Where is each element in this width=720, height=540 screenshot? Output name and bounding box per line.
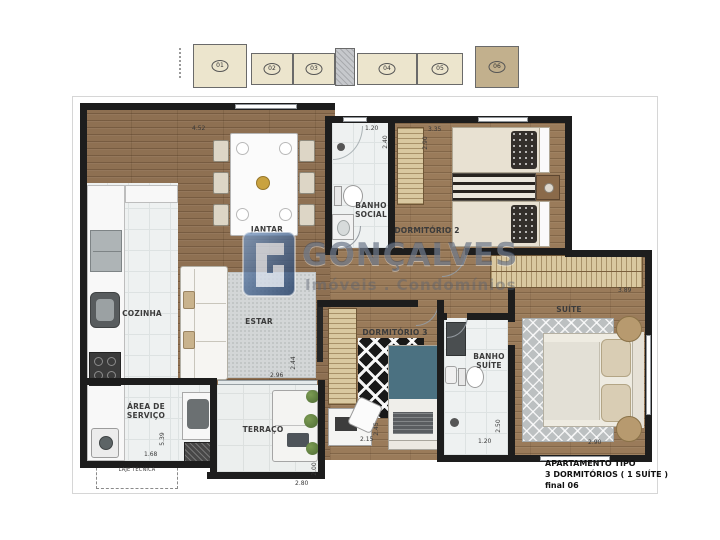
- keyplan-unit-01: 01: [193, 44, 247, 88]
- dim-kitchen-h: 5.39: [160, 424, 166, 454]
- shower-head-icon: [450, 418, 459, 427]
- keyplan-unit-03: 03: [293, 53, 335, 85]
- dim-terraco-h: 2.00: [312, 454, 318, 484]
- unit-title-line1: APARTAMENTO TIPO: [545, 458, 695, 469]
- plate: [236, 208, 249, 221]
- laundry-tub: [182, 392, 212, 440]
- wardrobe-bedroom3: [328, 308, 357, 405]
- dining-chair: [299, 140, 315, 162]
- wall: [318, 380, 325, 479]
- room-label-dormitorio3: DORMITÓRIO 3: [360, 329, 430, 338]
- dim-dorm2-h: 2.90: [423, 128, 429, 158]
- dining-chair: [299, 172, 315, 194]
- room-label-terraco: TERRAÇO: [238, 426, 288, 435]
- bath-sink: [445, 366, 457, 384]
- dining-chair: [299, 204, 315, 226]
- headboard: [539, 202, 549, 246]
- dining-chair: [213, 140, 229, 162]
- keyplan-unit-04: 04: [357, 53, 417, 85]
- plate: [279, 142, 292, 155]
- wall: [325, 123, 332, 253]
- dim-suite-top: 3.89: [618, 288, 631, 294]
- unit-title-block: APARTAMENTO TIPO 3 DORMITÓRIOS ( 1 SUÍTE…: [545, 458, 695, 491]
- room-label-cozinha: COZINHA: [117, 310, 167, 319]
- street-line: [179, 48, 181, 80]
- dim-banho-suite-h: 2.50: [496, 411, 502, 441]
- kitchen-sink: [90, 292, 120, 328]
- wall: [318, 300, 418, 307]
- dim-service-w: 1.68: [144, 452, 157, 458]
- keyplan-unit-05: 05: [417, 53, 463, 85]
- kitchen-counter-top: [125, 185, 178, 203]
- unit-number: 06: [489, 61, 506, 73]
- floorplan-page: 01 02 03 04 05 06: [0, 0, 720, 540]
- dim-banho-social-h: 2.40: [383, 127, 389, 157]
- toilet-tank: [334, 186, 342, 206]
- unit-number: 02: [264, 63, 281, 75]
- dim-banho-social-w: 1.20: [365, 126, 378, 132]
- dim-dorm3-h: 2.45: [374, 414, 380, 444]
- watermark-tagline: Imóveis . Condomínios: [305, 276, 517, 294]
- dim-terraco-w: 2.80: [295, 481, 308, 487]
- keyplan-unit-02: 02: [251, 53, 293, 85]
- sofa-seam: [196, 341, 226, 342]
- headboard: [539, 128, 549, 172]
- fridge-door-line: [93, 251, 121, 252]
- toilet-tank: [458, 368, 466, 386]
- single-bed: [452, 127, 550, 173]
- sofa: [180, 266, 228, 380]
- blanket: [544, 342, 600, 420]
- goncalves-logo-icon: [242, 231, 296, 297]
- room-label-estar: ESTAR: [234, 318, 284, 327]
- plate: [279, 208, 292, 221]
- dim-dorm2-w: 3.35: [428, 127, 441, 133]
- nightstand: [536, 175, 560, 200]
- throw-pillow: [183, 291, 195, 309]
- unit-number: 05: [432, 63, 449, 75]
- window: [646, 335, 651, 415]
- window: [235, 104, 297, 109]
- shower-head-icon: [337, 143, 345, 151]
- folded-blanket: [393, 412, 433, 434]
- keyplan-unit-06-highlighted: 06: [475, 46, 519, 88]
- table-centerpiece: [256, 176, 270, 190]
- washer-door: [99, 436, 113, 450]
- wall: [210, 378, 217, 479]
- sink-basin: [96, 299, 114, 321]
- building-keyplan: 01 02 03 04 05 06: [185, 40, 530, 96]
- fridge: [90, 230, 122, 272]
- wardrobe-bedroom2: [397, 127, 424, 205]
- lamp: [544, 183, 554, 193]
- plant: [304, 414, 318, 428]
- wall: [437, 313, 447, 320]
- bedroom2-rug: [452, 173, 536, 201]
- throw-pillow: [183, 331, 195, 349]
- dim-estar-w: 2.96: [270, 373, 283, 379]
- window: [343, 117, 367, 122]
- washer: [91, 428, 119, 458]
- headboard: [632, 332, 644, 428]
- wall: [207, 472, 325, 479]
- wall: [83, 378, 217, 385]
- headboard: [389, 440, 437, 449]
- wall: [80, 103, 87, 468]
- round-stool: [616, 416, 642, 442]
- dim-dorm3-w: 2.15: [360, 437, 373, 443]
- dining-chair: [213, 204, 229, 226]
- tub-basin: [187, 399, 209, 429]
- unit-number: 03: [306, 63, 323, 75]
- room-label-banho-social: BANHO SOCIAL: [349, 202, 393, 219]
- sofa-seam: [196, 303, 226, 304]
- double-bed: [543, 333, 643, 427]
- pillow: [601, 339, 631, 377]
- round-stool: [616, 316, 642, 342]
- burner: [94, 357, 103, 366]
- window: [478, 117, 528, 122]
- dim-estar-h: 2.44: [291, 348, 297, 378]
- pillow: [511, 131, 537, 169]
- single-bed-bedroom3: [388, 345, 438, 450]
- dining-chair: [213, 172, 229, 194]
- unit-title-line3: final 06: [545, 480, 695, 491]
- keyplan-core: [335, 48, 355, 86]
- plate: [236, 142, 249, 155]
- wall: [565, 250, 652, 257]
- wall: [565, 116, 572, 257]
- dim-banho-suite-w: 1.20: [478, 439, 491, 445]
- sliding-glass-door: [218, 380, 317, 385]
- burner: [107, 357, 116, 366]
- room-label-suite: SUÍTE: [549, 306, 589, 315]
- watermark-brand: GONÇALVES: [302, 237, 518, 273]
- unit-title-line2: 3 DORMITÓRIOS ( 1 SUÍTE ): [545, 469, 695, 480]
- tv-panel: [317, 300, 323, 362]
- unit-number: 04: [379, 63, 396, 75]
- room-label-dormitorio2: DORMITÓRIO 2: [392, 227, 462, 236]
- dim-suite-w: 2.90: [588, 440, 601, 446]
- bed-cover: [389, 346, 437, 399]
- wall: [437, 300, 444, 462]
- room-label-area-servico: ÁREA DE SERVIÇO: [123, 403, 169, 420]
- unit-number: 01: [212, 60, 229, 72]
- room-label-laje-tecnica: LAJE TÉCNICA: [117, 467, 157, 473]
- dim-living-width: 4.52: [192, 126, 205, 132]
- sofa-seam: [194, 269, 195, 379]
- room-label-banho-suite: BANHO SUÍTE: [468, 353, 510, 370]
